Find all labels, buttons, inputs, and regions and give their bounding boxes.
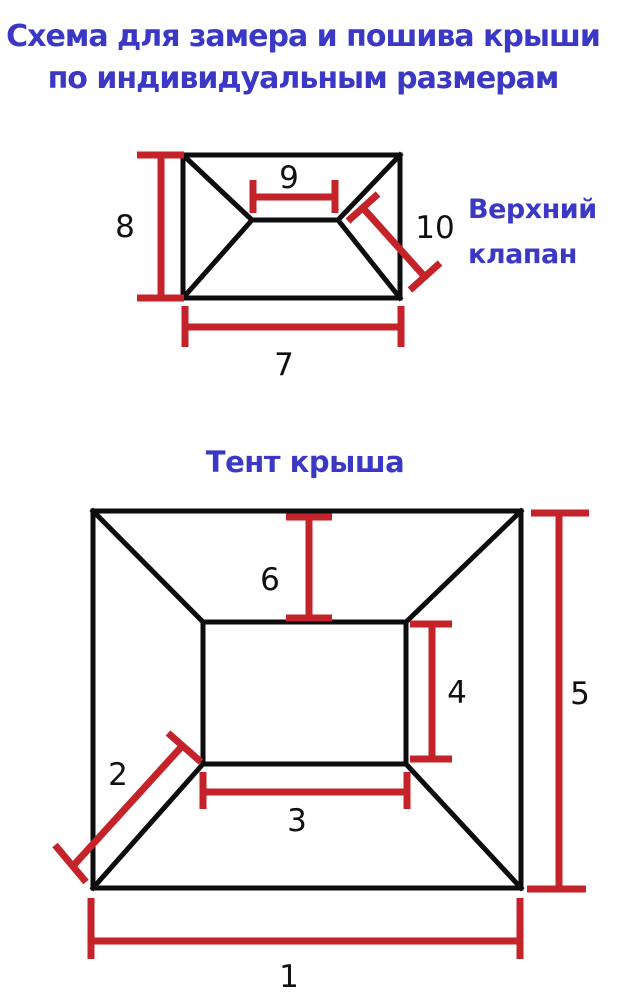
page-title-line1: Схема для замера и пошива крыши	[6, 19, 600, 54]
upper-flap-label-line2: клапан	[468, 239, 577, 270]
dim-label-2: 2	[108, 757, 128, 793]
roof-measurement-scheme-page: 8 9 10 7 6 4 5 3 2 1 Схема для замера и …	[0, 0, 634, 1003]
page-title-line2: по индивидуальным размерам	[48, 61, 559, 96]
tent-roof-title: Тент крыша	[206, 445, 404, 479]
measure-4-line	[410, 624, 452, 759]
measure-6-line	[286, 517, 332, 618]
dim-label-5: 5	[570, 676, 590, 712]
upper-flap-label-line1: Верхний	[468, 194, 597, 225]
measure-1-line	[91, 898, 520, 959]
dim-label-1: 1	[279, 959, 299, 995]
dim-label-10: 10	[415, 210, 454, 246]
measure-2-line	[55, 733, 201, 882]
dim-label-6: 6	[260, 562, 280, 598]
measure-7-line	[185, 306, 401, 347]
measure-8-line	[137, 155, 184, 298]
dim-label-9: 9	[279, 160, 299, 196]
tent-inner-rect	[203, 622, 406, 764]
blue-text: Схема для замера и пошива крыши по индив…	[6, 19, 600, 479]
scheme-canvas: 8 9 10 7 6 4 5 3 2 1 Схема для замера и …	[0, 0, 634, 1003]
dim-label-8: 8	[115, 209, 135, 245]
dim-label-7: 7	[274, 347, 294, 383]
dim-label-3: 3	[287, 803, 307, 839]
dimension-labels: 8 9 10 7 6 4 5 3 2 1	[108, 160, 590, 995]
dim-label-4: 4	[447, 675, 467, 711]
